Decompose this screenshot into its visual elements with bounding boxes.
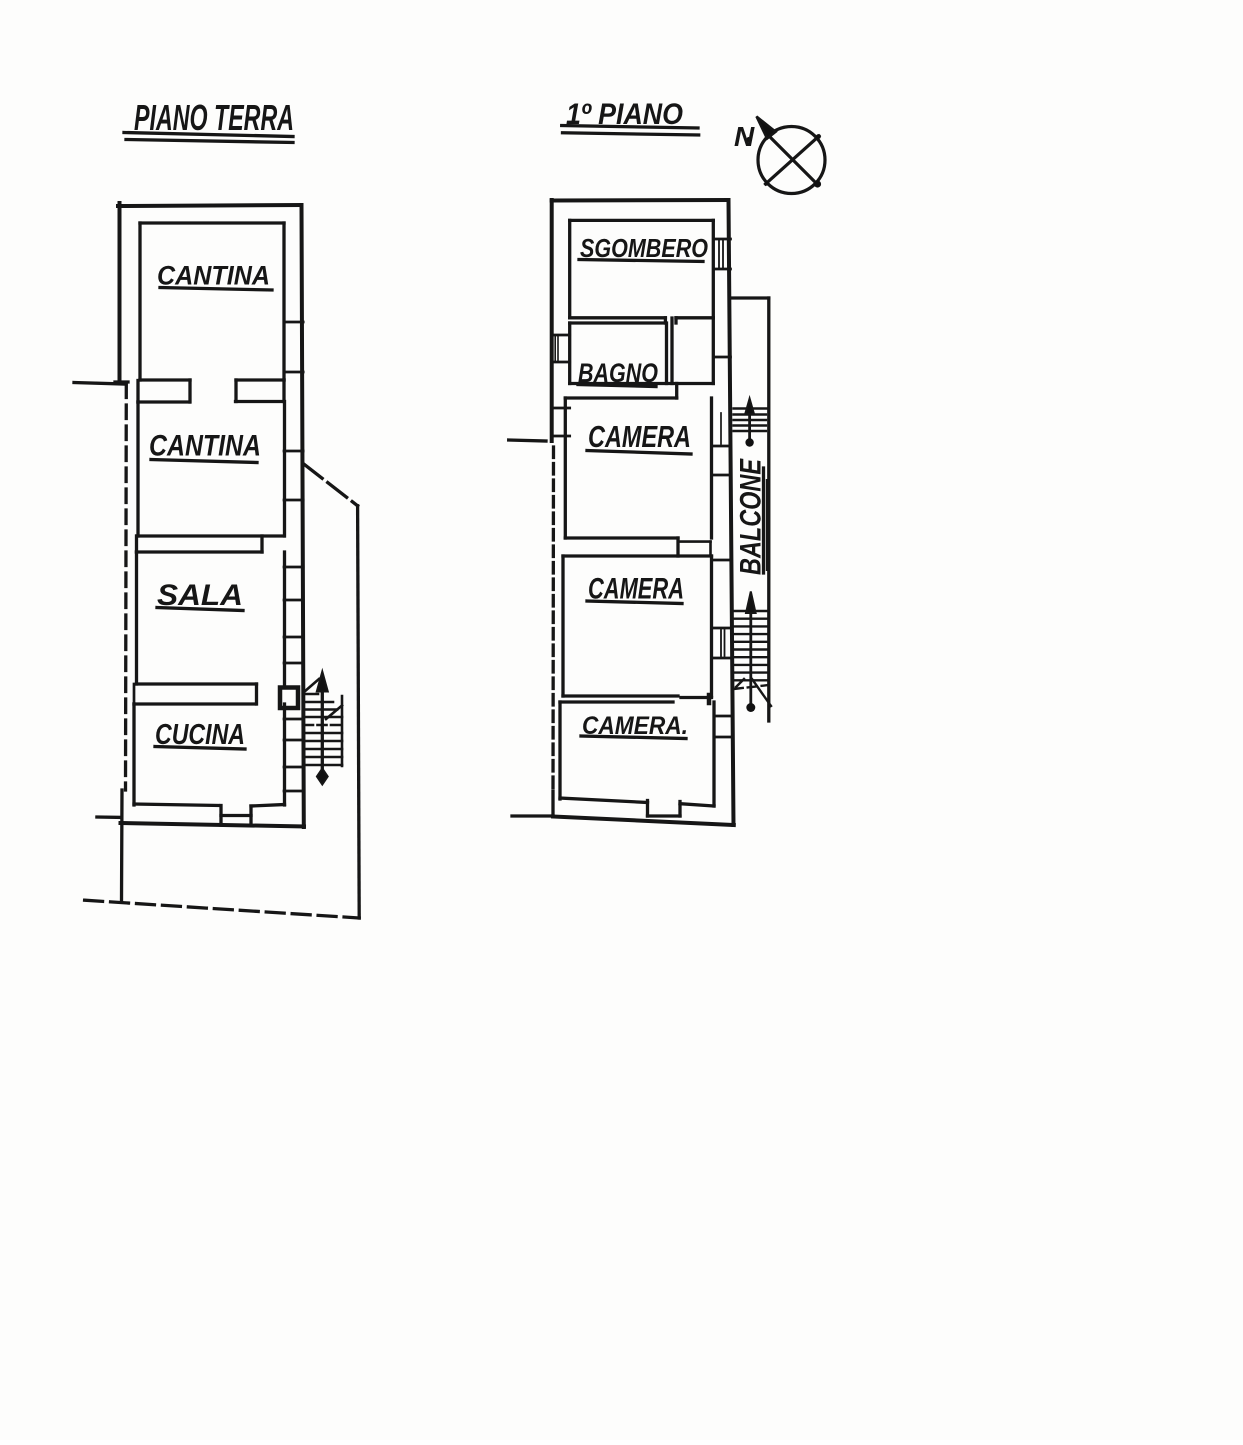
svg-text:BALCONE: BALCONE bbox=[735, 458, 768, 575]
svg-text:BAGNO: BAGNO bbox=[578, 358, 658, 388]
svg-text:CANTINA: CANTINA bbox=[157, 261, 270, 291]
svg-text:CAMERA: CAMERA bbox=[588, 419, 691, 454]
svg-text:CUCINA: CUCINA bbox=[155, 719, 245, 751]
svg-text:CAMERA.: CAMERA. bbox=[582, 712, 688, 740]
svg-text:SALA: SALA bbox=[157, 579, 243, 612]
svg-text:SGOMBERO: SGOMBERO bbox=[580, 235, 708, 263]
svg-text:PIANO TERRA: PIANO TERRA bbox=[134, 97, 294, 138]
svg-text:N: N bbox=[734, 121, 755, 152]
svg-text:1º PIANO: 1º PIANO bbox=[566, 98, 683, 131]
svg-text:CAMERA: CAMERA bbox=[588, 573, 684, 606]
svg-text:CANTINA: CANTINA bbox=[149, 430, 261, 463]
